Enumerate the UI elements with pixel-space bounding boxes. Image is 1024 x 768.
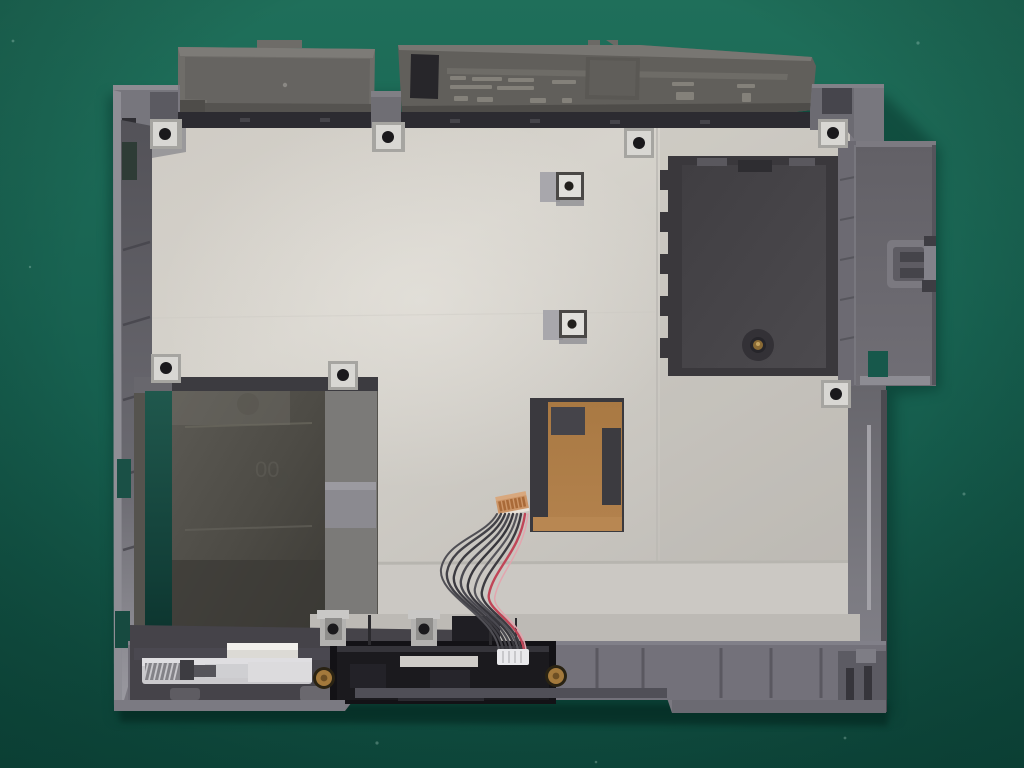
svg-text:00: 00	[255, 457, 279, 482]
